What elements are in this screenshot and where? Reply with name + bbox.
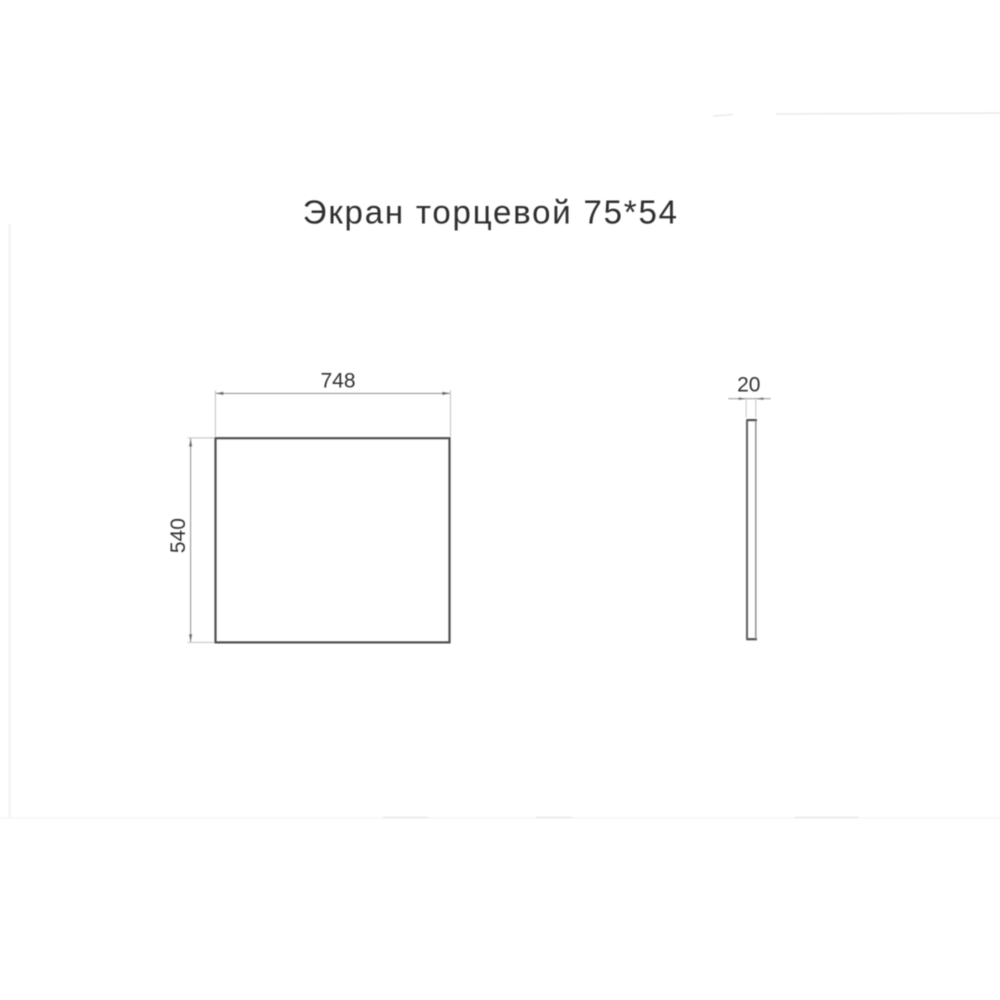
- svg-text:748: 748: [320, 370, 355, 393]
- svg-text:Экран торцевой 75*54: Экран торцевой 75*54: [303, 193, 679, 230]
- svg-text:20: 20: [737, 374, 760, 397]
- svg-text:540: 540: [167, 518, 190, 553]
